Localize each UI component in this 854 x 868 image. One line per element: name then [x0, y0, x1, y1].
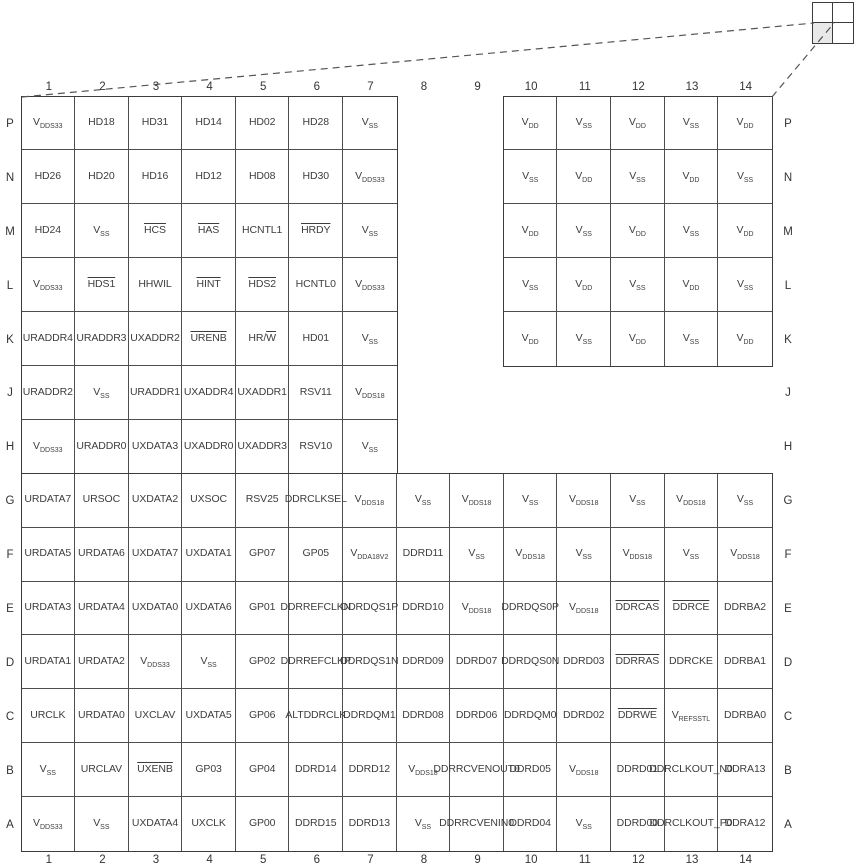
pin-P7: VSS	[343, 97, 397, 151]
row-label-left-N: N	[6, 172, 14, 184]
pin-G7: VDDS18	[343, 474, 397, 528]
package-quadrant-top-right	[833, 3, 853, 23]
col-label-top-3: 3	[153, 81, 159, 93]
pin-C9: DDRD06	[450, 689, 504, 743]
pin-G4: UXSOC	[182, 474, 236, 528]
pin-G2: URSOC	[75, 474, 129, 528]
pin-K3: UXADDR2	[129, 312, 183, 366]
pin-A7: DDRD13	[343, 797, 397, 851]
pin-A4: UXCLK	[182, 797, 236, 851]
pin-G5: RSV25	[236, 474, 290, 528]
row-label-right-G: G	[784, 495, 793, 507]
pin-K12: VDD	[611, 312, 665, 366]
pin-L4: HINT	[182, 258, 236, 312]
pin-C4: UXDATA5	[182, 689, 236, 743]
col-label-top-14: 14	[739, 81, 752, 93]
pin-D4: VSS	[182, 635, 236, 689]
pin-F11: VSS	[557, 528, 611, 582]
pin-A10: DDRD04	[504, 797, 558, 851]
pin-B9: DDRRCVENOUT0	[450, 743, 504, 797]
pin-D8: DDRD09	[397, 635, 451, 689]
pin-B2: URCLAV	[75, 743, 129, 797]
col-label-bottom-6: 6	[314, 854, 320, 866]
row-label-right-H: H	[784, 441, 792, 453]
pin-K11: VSS	[557, 312, 611, 366]
pin-C5: GP06	[236, 689, 290, 743]
pin-C11: DDRD02	[557, 689, 611, 743]
pin-G14: VSS	[718, 474, 772, 528]
pin-E13: DDRCE	[665, 582, 719, 636]
pin-K14: VDD	[718, 312, 772, 366]
pin-P14: VDD	[718, 97, 772, 151]
pin-P3: HD31	[129, 97, 183, 151]
pin-M11: VSS	[557, 204, 611, 258]
col-label-top-7: 7	[367, 81, 373, 93]
col-label-top-11: 11	[579, 81, 591, 93]
pin-J5: UXADDR1	[236, 366, 290, 420]
pin-F3: UXDATA7	[129, 528, 183, 582]
row-label-left-K: K	[6, 334, 14, 346]
pin-B4: GP03	[182, 743, 236, 797]
pin-L11: VDD	[557, 258, 611, 312]
pin-L1: VDDS33	[22, 258, 76, 312]
pin-C1: URCLK	[22, 689, 76, 743]
pin-F14: VDDS18	[718, 528, 772, 582]
pin-J7: VDDS18	[343, 366, 397, 420]
pin-H7: VSS	[343, 420, 397, 474]
pin-E2: URDATA4	[75, 582, 129, 636]
pin-M12: VDD	[611, 204, 665, 258]
pin-A3: UXDATA4	[129, 797, 183, 851]
pin-K10: VDD	[504, 312, 558, 366]
pin-G11: VDDS18	[557, 474, 611, 528]
pin-N7: VDDS33	[343, 150, 397, 204]
pin-B6: DDRD14	[289, 743, 343, 797]
pin-M5: HCNTL1	[236, 204, 290, 258]
row-label-right-A: A	[784, 819, 792, 831]
package-orientation-icon	[812, 2, 854, 44]
pin-M6: HRDY	[289, 204, 343, 258]
pin-F7: VDDA18V2	[343, 528, 397, 582]
pin-K6: HD01	[289, 312, 343, 366]
pin-K7: VSS	[343, 312, 397, 366]
pin-E14: DDRBA2	[718, 582, 772, 636]
col-label-bottom-11: 11	[579, 854, 591, 866]
pin-C6: ALTDDRCLK	[289, 689, 343, 743]
col-label-top-8: 8	[421, 81, 427, 93]
bga-pin-map: VDDS33HD18HD31HD14HD02HD28VSSHD26HD20HD1…	[0, 0, 854, 868]
col-label-bottom-4: 4	[206, 854, 212, 866]
pin-L12: VSS	[611, 258, 665, 312]
pin-C7: DDRDQM1	[343, 689, 397, 743]
pin-D6: DDRREFCLKP	[289, 635, 343, 689]
pin-H3: UXDATA3	[129, 420, 183, 474]
pin-G9: VDDS18	[450, 474, 504, 528]
row-label-right-J: J	[785, 387, 791, 399]
pin-C12: DDRWE	[611, 689, 665, 743]
pin-A5: GP00	[236, 797, 290, 851]
pin-N6: HD30	[289, 150, 343, 204]
row-label-left-G: G	[6, 495, 15, 507]
pin-C14: DDRBA0	[718, 689, 772, 743]
pin-L5: HDS2	[236, 258, 290, 312]
col-label-bottom-2: 2	[99, 854, 105, 866]
row-label-right-F: F	[784, 549, 791, 561]
pin-B11: VDDS18	[557, 743, 611, 797]
pin-J2: VSS	[75, 366, 129, 420]
col-label-top-5: 5	[260, 81, 266, 93]
pin-N3: HD16	[129, 150, 183, 204]
pin-H4: UXADDR0	[182, 420, 236, 474]
row-label-left-C: C	[6, 711, 14, 723]
pin-E3: UXDATA0	[129, 582, 183, 636]
pin-F4: UXDATA1	[182, 528, 236, 582]
pin-C13: VREFSSTL	[665, 689, 719, 743]
pin-D12: DDRRAS	[611, 635, 665, 689]
pin-E4: UXDATA6	[182, 582, 236, 636]
pin-N2: HD20	[75, 150, 129, 204]
pin-G1: URDATA7	[22, 474, 76, 528]
pin-L13: VDD	[665, 258, 719, 312]
pin-F13: VSS	[665, 528, 719, 582]
row-label-right-B: B	[784, 765, 792, 777]
pin-D13: DDRCKE	[665, 635, 719, 689]
pin-N12: VSS	[611, 150, 665, 204]
pin-P11: VSS	[557, 97, 611, 151]
row-label-left-J: J	[7, 387, 13, 399]
col-label-bottom-14: 14	[739, 854, 752, 866]
pin-N13: VDD	[665, 150, 719, 204]
row-label-left-F: F	[6, 549, 13, 561]
pin-N4: HD12	[182, 150, 236, 204]
pin-G8: VSS	[397, 474, 451, 528]
pin-M3: HCS	[129, 204, 183, 258]
col-label-top-6: 6	[314, 81, 320, 93]
pin-F6: GP05	[289, 528, 343, 582]
row-label-right-E: E	[784, 603, 792, 615]
pin-E11: VDDS18	[557, 582, 611, 636]
pin-H5: UXADDR3	[236, 420, 290, 474]
row-label-right-M: M	[783, 226, 793, 238]
pin-A13: DDRCLKOUT_P0	[665, 797, 719, 851]
pin-L6: HCNTL0	[289, 258, 343, 312]
pin-G10: VSS	[504, 474, 558, 528]
pin-B5: GP04	[236, 743, 290, 797]
pin-D1: URDATA1	[22, 635, 76, 689]
pin-A1: VDDS33	[22, 797, 76, 851]
row-label-left-B: B	[6, 765, 14, 777]
row-label-right-D: D	[784, 657, 792, 669]
pin-J3: URADDR1	[129, 366, 183, 420]
pin-G13: VDDS18	[665, 474, 719, 528]
col-label-bottom-7: 7	[367, 854, 373, 866]
col-label-bottom-10: 10	[525, 854, 538, 866]
pin-A14: DDRA12	[718, 797, 772, 851]
pin-E10: DDRDQS0P	[504, 582, 558, 636]
pin-C10: DDRDQM0	[504, 689, 558, 743]
pin-N10: VSS	[504, 150, 558, 204]
pin-K13: VSS	[665, 312, 719, 366]
row-label-left-E: E	[6, 603, 14, 615]
pin-D7: DDRDQS1N	[343, 635, 397, 689]
pin-D9: DDRD07	[450, 635, 504, 689]
pin-L3: HHWIL	[129, 258, 183, 312]
pin-N11: VDD	[557, 150, 611, 204]
row-label-left-M: M	[5, 226, 15, 238]
row-label-right-P: P	[784, 118, 792, 130]
row-label-right-L: L	[785, 280, 791, 292]
row-label-right-K: K	[784, 334, 792, 346]
pin-D14: DDRBA1	[718, 635, 772, 689]
pin-J1: URADDR2	[22, 366, 76, 420]
pin-J4: UXADDR4	[182, 366, 236, 420]
col-label-top-4: 4	[206, 81, 212, 93]
col-label-top-2: 2	[99, 81, 105, 93]
pin-block: VDDVSSVDDVSSVDDVSSVDDVSSVDDVSSVDDVSSVDDV…	[503, 96, 773, 367]
pin-K5: HR/W	[236, 312, 290, 366]
pin-G12: VSS	[611, 474, 665, 528]
pin-L2: HDS1	[75, 258, 129, 312]
pin-A2: VSS	[75, 797, 129, 851]
pin-E8: DDRD10	[397, 582, 451, 636]
pin-D3: VDDS33	[129, 635, 183, 689]
pin-M7: VSS	[343, 204, 397, 258]
pin-K4: URENB	[182, 312, 236, 366]
col-label-top-13: 13	[686, 81, 699, 93]
pin-F2: URDATA6	[75, 528, 129, 582]
pin-K1: URADDR4	[22, 312, 76, 366]
pin-E12: DDRCAS	[611, 582, 665, 636]
package-quadrant-bottom-right	[833, 23, 853, 43]
pin-M1: HD24	[22, 204, 76, 258]
package-quadrant-top-left	[813, 3, 833, 23]
row-label-left-H: H	[6, 441, 14, 453]
pin-L14: VSS	[718, 258, 772, 312]
pin-P12: VDD	[611, 97, 665, 151]
pin-N5: HD08	[236, 150, 290, 204]
pin-K2: URADDR3	[75, 312, 129, 366]
pin-block: VDDS33HD18HD31HD14HD02HD28VSSHD26HD20HD1…	[21, 96, 398, 475]
pin-E6: DDRREFCLKN	[289, 582, 343, 636]
pin-M10: VDD	[504, 204, 558, 258]
pin-L10: VSS	[504, 258, 558, 312]
pin-F8: DDRD11	[397, 528, 451, 582]
pin-B7: DDRD12	[343, 743, 397, 797]
pin-E1: URDATA3	[22, 582, 76, 636]
pin-block: URDATA7URSOCUXDATA2UXSOCRSV25DDRCLKSELVD…	[21, 473, 773, 852]
pin-A6: DDRD15	[289, 797, 343, 851]
pin-B10: DDRD05	[504, 743, 558, 797]
pin-B1: VSS	[22, 743, 76, 797]
row-label-left-P: P	[6, 118, 14, 130]
pin-A9: DDRRCVENIN0	[450, 797, 504, 851]
row-label-left-D: D	[6, 657, 14, 669]
col-label-bottom-1: 1	[46, 854, 52, 866]
col-label-bottom-8: 8	[421, 854, 427, 866]
pin-F5: GP07	[236, 528, 290, 582]
col-label-bottom-13: 13	[686, 854, 699, 866]
pin-P1: VDDS33	[22, 97, 76, 151]
row-label-right-N: N	[784, 172, 792, 184]
col-label-top-12: 12	[632, 81, 645, 93]
col-label-bottom-3: 3	[153, 854, 159, 866]
pin-P10: VDD	[504, 97, 558, 151]
pin-M14: VDD	[718, 204, 772, 258]
pin-N14: VSS	[718, 150, 772, 204]
pin-P2: HD18	[75, 97, 129, 151]
pin-H2: URADDR0	[75, 420, 129, 474]
pin-M13: VSS	[665, 204, 719, 258]
pin-B13: DDRCLKOUT_N0	[665, 743, 719, 797]
pin-E9: VDDS18	[450, 582, 504, 636]
pin-N1: HD26	[22, 150, 76, 204]
pin-L7: VDDS33	[343, 258, 397, 312]
pin-G6: DDRCLKSEL	[289, 474, 343, 528]
pin-F9: VSS	[450, 528, 504, 582]
pin-B14: DDRA13	[718, 743, 772, 797]
row-label-left-A: A	[6, 819, 14, 831]
package-quadrant-bottom-left-shaded	[813, 23, 833, 43]
pin-B3: UXENB	[129, 743, 183, 797]
pin-P13: VSS	[665, 97, 719, 151]
pin-P6: HD28	[289, 97, 343, 151]
row-label-right-C: C	[784, 711, 792, 723]
pin-C3: UXCLAV	[129, 689, 183, 743]
col-label-top-1: 1	[46, 81, 52, 93]
pin-M4: HAS	[182, 204, 236, 258]
pin-D2: URDATA2	[75, 635, 129, 689]
col-label-bottom-12: 12	[632, 854, 645, 866]
pin-C8: DDRD08	[397, 689, 451, 743]
pin-D10: DDRDQS0N	[504, 635, 558, 689]
col-label-top-10: 10	[525, 81, 538, 93]
col-label-bottom-5: 5	[260, 854, 266, 866]
pin-J6: RSV11	[289, 366, 343, 420]
col-label-top-9: 9	[474, 81, 480, 93]
pin-G3: UXDATA2	[129, 474, 183, 528]
pin-P4: HD14	[182, 97, 236, 151]
pin-H1: VDDS33	[22, 420, 76, 474]
pin-F12: VDDS18	[611, 528, 665, 582]
pin-P5: HD02	[236, 97, 290, 151]
col-label-bottom-9: 9	[474, 854, 480, 866]
row-label-left-L: L	[7, 280, 13, 292]
pin-M2: VSS	[75, 204, 129, 258]
pin-D11: DDRD03	[557, 635, 611, 689]
pin-F10: VDDS18	[504, 528, 558, 582]
pin-A11: VSS	[557, 797, 611, 851]
pin-C2: URDATA0	[75, 689, 129, 743]
pin-H6: RSV10	[289, 420, 343, 474]
pin-F1: URDATA5	[22, 528, 76, 582]
pin-E7: DDRDQS1P	[343, 582, 397, 636]
